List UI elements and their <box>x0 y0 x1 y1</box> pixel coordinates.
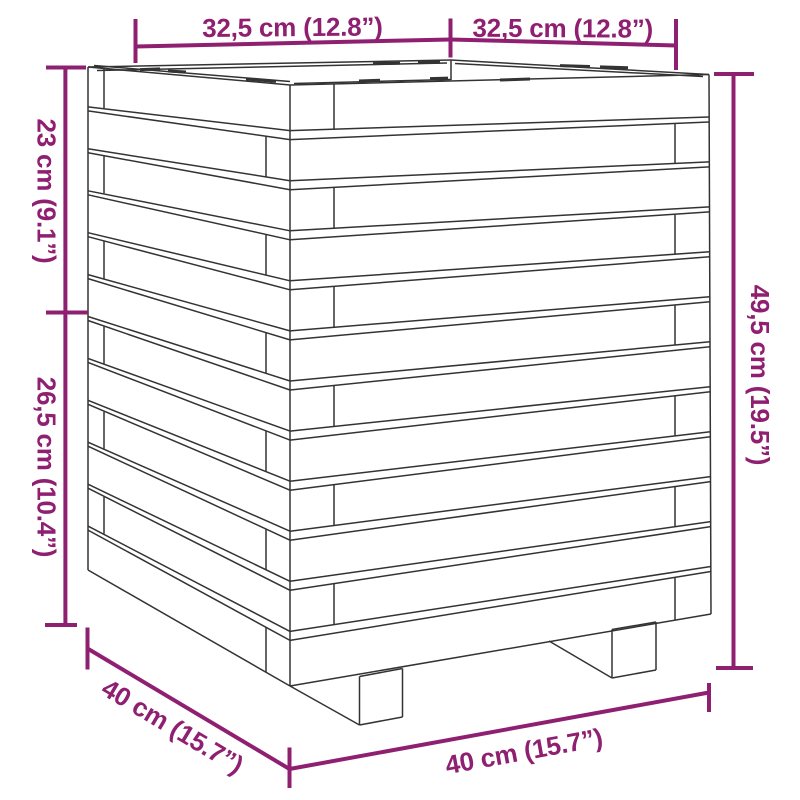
svg-text:40 cm (15.7”): 40 cm (15.7”) <box>443 722 605 780</box>
svg-text:32,5 cm (12.8”): 32,5 cm (12.8”) <box>472 13 653 44</box>
svg-text:49,5 cm (19.5”): 49,5 cm (19.5”) <box>745 285 775 466</box>
svg-text:40 cm (15.7”): 40 cm (15.7”) <box>97 673 249 780</box>
svg-text:32,5 cm (12.8”): 32,5 cm (12.8”) <box>202 11 383 43</box>
svg-text:26,5 cm (10.4”): 26,5 cm (10.4”) <box>32 377 62 558</box>
svg-text:23 cm (9.1”): 23 cm (9.1”) <box>32 118 62 263</box>
